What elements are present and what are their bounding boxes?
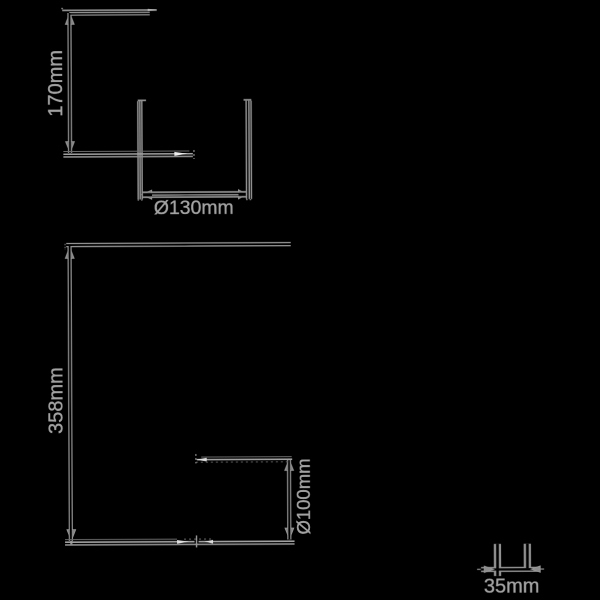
svg-text:Ø100mm: Ø100mm [293, 458, 314, 534]
svg-text:170mm: 170mm [45, 50, 67, 117]
svg-text:Ø130mm: Ø130mm [154, 197, 234, 219]
svg-text:35mm: 35mm [484, 576, 540, 598]
svg-text:358mm: 358mm [45, 367, 67, 434]
